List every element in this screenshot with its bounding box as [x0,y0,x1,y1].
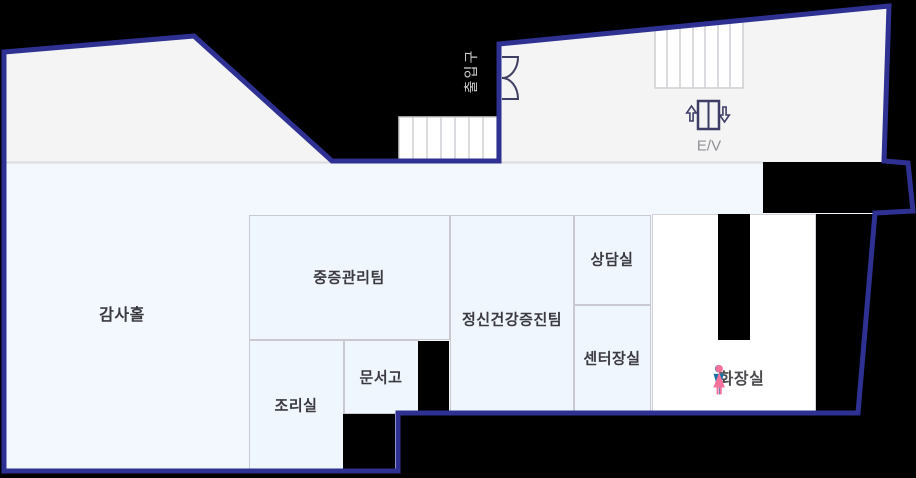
wall-block [763,163,913,213]
room-label-gamsa-hall: 감사홀 [99,301,145,325]
elevator-label: E/V [697,138,721,155]
building-outline [4,6,913,471]
room-label-severe-mgmt-team: 중증관리팀 [313,267,385,288]
floor-plan: 감사홀 중증관리팀 정신건강증진팀 상담실 센터장실 조리실 문서고 화장실 [0,0,916,478]
room-label-counseling: 상담실 [591,249,634,270]
floor-plan-outline [0,0,916,478]
room-label-director-office: 센터장실 [583,348,640,369]
down-arrow-icon [720,107,730,122]
up-arrow-icon [687,106,697,121]
wall-block [418,341,449,413]
room-label-kitchen: 조리실 [275,395,318,416]
female-figure-icon [712,365,727,395]
wall-block [718,214,750,340]
elevator-doors-icon [687,101,730,129]
room-label-mental-health-team: 정신건강증진팀 [462,309,562,330]
wall-block [343,414,395,472]
double-swing-door-icon [502,57,518,99]
entrance-label: 출입구 [461,49,481,94]
restroom-label-group: 화장실 [712,365,765,389]
room-label-document-storage: 문서고 [360,367,403,388]
